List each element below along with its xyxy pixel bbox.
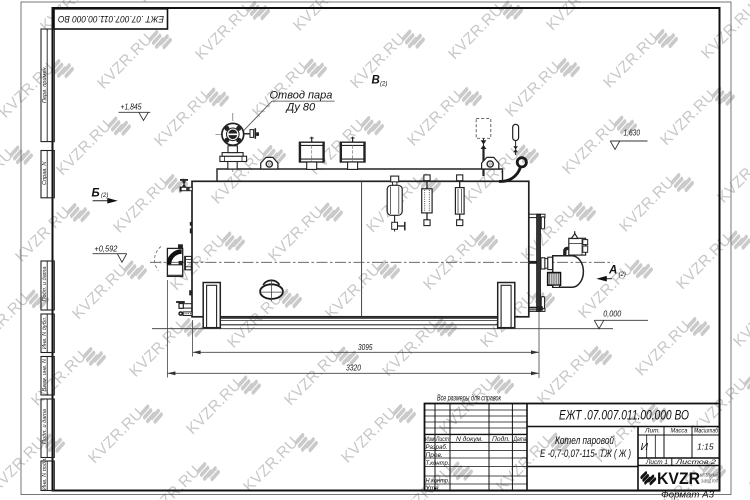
svg-text:Ду 80: Ду 80 (285, 102, 317, 114)
svg-text:Формат А3: Формат А3 (661, 490, 715, 500)
svg-text:3095: 3095 (358, 342, 373, 352)
svg-text:0,000: 0,000 (603, 309, 621, 319)
svg-text:Лист 1: Лист 1 (645, 459, 668, 466)
svg-text:А: А (608, 265, 617, 277)
svg-text:Утв.: Утв. (425, 485, 441, 492)
svg-text:Масштаб: Масштаб (694, 427, 718, 435)
svg-text:В: В (372, 75, 380, 87)
svg-text:Справ. N: Справ. N (42, 161, 48, 185)
svg-text:Котел паровой: Котел паровой (555, 435, 614, 447)
svg-text:Отвод пара: Отвод пара (270, 90, 333, 102)
svg-text:Пров.: Пров. (426, 452, 443, 459)
svg-text:Инв. N подл.: Инв. N подл. (42, 457, 48, 490)
svg-text:Подп. и дата: Подп. и дата (42, 409, 48, 444)
svg-text:ЕЖТ .07.007.011.00.000 ВО: ЕЖТ .07.007.011.00.000 ВО (559, 408, 689, 423)
svg-text:(2): (2) (619, 272, 626, 278)
svg-text:Лит.: Лит. (644, 428, 660, 435)
svg-text:Н.контр.: Н.контр. (426, 478, 450, 485)
svg-text:Изм Лист: Изм Лист (425, 436, 449, 443)
svg-text:KVZR: KVZR (657, 469, 700, 488)
svg-text:Подп. и дата: Подп. и дата (42, 266, 48, 301)
svg-text:ЗАВОД РЭП: ЗАВОД РЭП (701, 479, 718, 484)
svg-text:Е -0,7-0,07-115- ТЖ ( Ж ): Е -0,7-0,07-115- ТЖ ( Ж ) (540, 448, 631, 460)
svg-text:Дата: Дата (513, 436, 527, 443)
svg-text:ЕЖТ .07.007.011.00.000 ВО: ЕЖТ .07.007.011.00.000 ВО (57, 13, 164, 24)
svg-text:Перв. примен.: Перв. примен. (42, 66, 48, 103)
svg-text:1,630: 1,630 (624, 127, 641, 137)
svg-text:Инв. N дубл.: Инв. N дубл. (42, 317, 48, 349)
svg-text:Все размеры для справок: Все размеры для справок (437, 393, 502, 402)
svg-text:N докум.: N докум. (456, 435, 483, 443)
svg-text:КОТЕЛЬНЫЙ: КОТЕЛЬНЫЙ (700, 471, 718, 478)
svg-text:Листов 2: Листов 2 (675, 459, 717, 466)
svg-text:(2): (2) (101, 193, 108, 199)
svg-text:Масса: Масса (671, 428, 688, 435)
svg-text:Взам. инв. N: Взам. инв. N (42, 358, 48, 392)
svg-text:3320: 3320 (346, 362, 361, 372)
svg-text:Разраб.: Разраб. (426, 443, 448, 451)
svg-text:Подп.: Подп. (492, 435, 510, 443)
svg-text:+1,845: +1,845 (121, 102, 142, 112)
svg-text:1:15: 1:15 (697, 442, 714, 452)
svg-text:И: И (641, 441, 649, 453)
svg-text:(2): (2) (380, 82, 387, 88)
svg-text:Б: Б (92, 187, 100, 199)
svg-text:Т.контр.: Т.контр. (426, 460, 450, 467)
svg-text:+0,592: +0,592 (94, 244, 117, 254)
